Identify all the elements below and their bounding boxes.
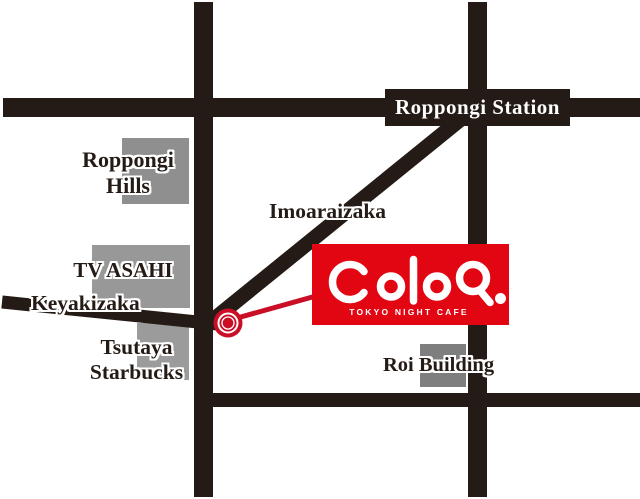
logo-letter-R-bowl <box>460 265 487 292</box>
road-left-vertical <box>194 2 213 497</box>
color-logo: TOKYO NIGHT CAFE <box>312 244 509 325</box>
logo-letter-C <box>333 265 365 300</box>
logo-letter-o2 <box>427 276 448 297</box>
label-keyakizaka: Keyakizaka <box>31 290 140 316</box>
logo-letter-R-leg <box>480 290 491 303</box>
label-roi-building: Roi Building <box>383 352 494 378</box>
label-tv-asahi: TV ASAHI <box>53 257 193 283</box>
logo-tagline: TOKYO NIGHT CAFE <box>349 307 469 317</box>
station-label-box: Roppongi Station <box>385 89 570 126</box>
label-tsutaya-starbucks: Tsutaya Starbucks <box>64 335 209 385</box>
station-label: Roppongi Station <box>395 95 560 120</box>
label-imoaraizaka: Imoaraizaka <box>269 198 386 224</box>
access-map: Roppongi Station Roppongi Hills Imoaraiz… <box>0 0 640 499</box>
label-roppongi-hills: Roppongi Hills <box>58 147 198 199</box>
cafe-logo-box: ColoR. TOKYO NIGHT CAFE <box>312 244 509 325</box>
road-bottom-horizontal <box>205 393 640 407</box>
logo-letter-o1 <box>381 276 402 297</box>
location-marker-icon <box>214 309 243 338</box>
color-logo-glyphs <box>333 260 491 303</box>
logo-period <box>495 293 506 304</box>
